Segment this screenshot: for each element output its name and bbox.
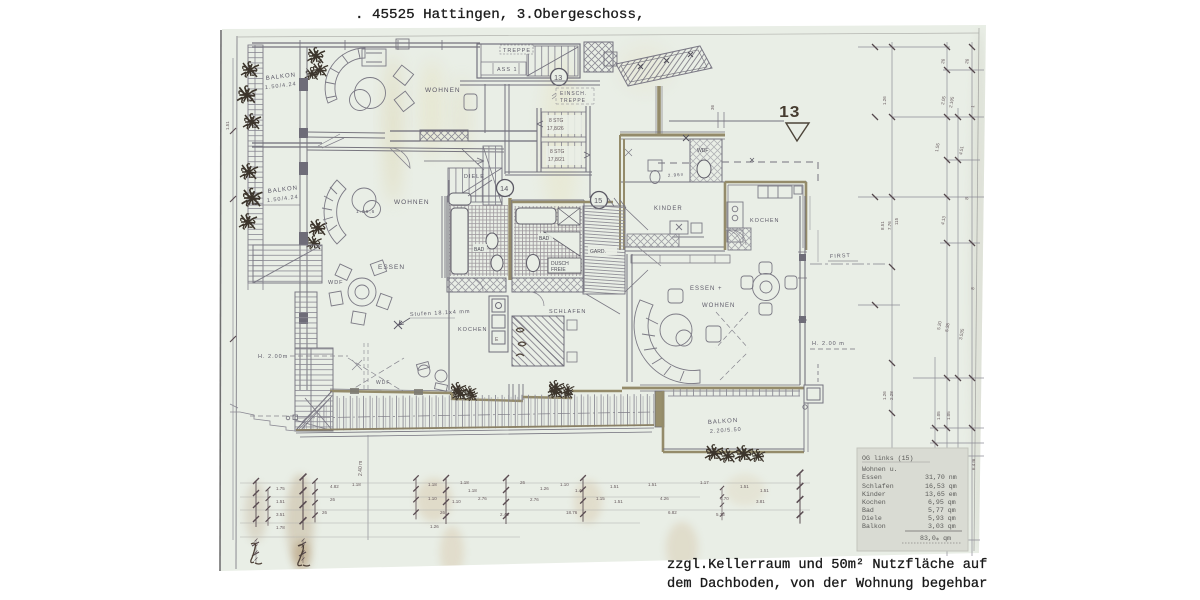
svg-text:26: 26 xyxy=(440,510,446,515)
svg-text:1.51: 1.51 xyxy=(740,484,749,489)
svg-text:5,77 qm: 5,77 qm xyxy=(928,507,956,514)
svg-text:26: 26 xyxy=(520,480,526,485)
svg-text:36: 36 xyxy=(710,104,715,110)
svg-text:TREPPE: TREPPE xyxy=(560,98,586,104)
svg-text:14: 14 xyxy=(500,184,508,193)
svg-text:1.51: 1.51 xyxy=(276,499,285,504)
svg-text:1.26: 1.26 xyxy=(882,96,887,105)
svg-text:H. 2.00m: H. 2.00m xyxy=(258,354,288,360)
svg-text:1.26: 1.26 xyxy=(430,524,439,529)
svg-text:WOHNEN: WOHNEN xyxy=(702,303,735,309)
svg-text:2.28: 2.28 xyxy=(889,391,894,400)
svg-text:1.15: 1.15 xyxy=(596,496,605,501)
svg-text:SCHLAFEN: SCHLAFEN xyxy=(549,309,586,315)
svg-text:1.26: 1.26 xyxy=(540,486,549,491)
svg-text:17,8/26: 17,8/26 xyxy=(547,126,564,132)
svg-text:83,0⁎ qm: 83,0⁎ qm xyxy=(920,535,951,542)
svg-text:6.4 m: 6.4 m xyxy=(971,458,976,470)
svg-text:. 45525 Hattingen, 3.Obergesch: . 45525 Hattingen, 3.Obergeschoss, xyxy=(355,7,644,23)
svg-text:1.51: 1.51 xyxy=(610,484,619,489)
svg-text:7.76: 7.76 xyxy=(887,221,892,230)
svg-text:ASS 1: ASS 1 xyxy=(497,67,518,73)
svg-text:1.18: 1.18 xyxy=(460,480,469,485)
svg-text:Balkon: Balkon xyxy=(862,523,886,530)
svg-text:1.10: 1.10 xyxy=(452,499,461,504)
svg-text:16,53 qm: 16,53 qm xyxy=(925,483,957,490)
svg-text:6,95 qm: 6,95 qm xyxy=(928,499,956,506)
svg-text:17,8/21: 17,8/21 xyxy=(548,157,565,163)
svg-text:1.05: 1.05 xyxy=(946,411,951,420)
svg-text:3.51: 3.51 xyxy=(276,512,285,517)
svg-text:1.51: 1.51 xyxy=(225,121,230,130)
svg-text:WDF: WDF xyxy=(376,380,390,386)
svg-text:KINDER: KINDER xyxy=(654,206,683,212)
svg-text:Kochen: Kochen xyxy=(862,499,886,506)
svg-text:GARD.: GARD. xyxy=(590,249,606,255)
svg-text:2.40 m: 2.40 m xyxy=(358,461,364,476)
svg-text:5,93 qm: 5,93 qm xyxy=(928,515,956,522)
svg-text:1.26: 1.26 xyxy=(882,391,887,400)
svg-text:2.40: 2.40 xyxy=(500,512,509,517)
svg-text:WOHNEN: WOHNEN xyxy=(425,87,461,94)
svg-text:KOCHEN: KOCHEN xyxy=(458,327,488,333)
svg-text:BAD: BAD xyxy=(474,247,485,253)
svg-text:Bad: Bad xyxy=(862,507,874,514)
svg-text:31,70 nm: 31,70 nm xyxy=(925,474,957,481)
svg-text:4.70: 4.70 xyxy=(720,496,729,501)
svg-text:3.81: 3.81 xyxy=(756,499,765,504)
svg-text:WOHNEN: WOHNEN xyxy=(394,199,430,206)
svg-text:KOCHEN: KOCHEN xyxy=(750,218,780,224)
svg-text:H. 2.00 m: H. 2.00 m xyxy=(812,341,845,347)
svg-text:3,03 qm: 3,03 qm xyxy=(928,523,956,530)
svg-text:1.18: 1.18 xyxy=(428,482,437,487)
svg-text:EINSCH.: EINSCH. xyxy=(560,91,587,97)
svg-text:Kinder: Kinder xyxy=(862,491,886,498)
svg-text:1.75: 1.75 xyxy=(276,486,285,491)
svg-text:6.82: 6.82 xyxy=(668,510,677,515)
svg-text:115: 115 xyxy=(894,217,899,225)
svg-text:8 STG: 8 STG xyxy=(550,149,565,155)
svg-text:1.18: 1.18 xyxy=(352,482,361,487)
svg-text:FREIE: FREIE xyxy=(551,267,566,273)
svg-text:1.05: 1.05 xyxy=(936,411,941,420)
svg-text:OG links (15): OG links (15) xyxy=(862,455,913,462)
svg-text:Diele: Diele xyxy=(862,515,882,522)
svg-text:8 STG: 8 STG xyxy=(549,118,564,124)
svg-text:TREPPE: TREPPE xyxy=(503,48,531,54)
svg-text:4.26: 4.26 xyxy=(660,496,669,501)
svg-text:Wohnen u.: Wohnen u. xyxy=(862,466,898,473)
svg-text:WDF: WDF xyxy=(328,280,344,286)
svg-text:WDF: WDF xyxy=(697,148,708,154)
svg-text:8.51: 8.51 xyxy=(880,221,885,230)
svg-text:13,65 em: 13,65 em xyxy=(925,491,957,498)
svg-text:FIRST: FIRST xyxy=(830,253,851,260)
svg-text:26: 26 xyxy=(330,497,336,502)
svg-text:ESSEN: ESSEN xyxy=(378,264,405,271)
svg-text:zzgl.Kellerraum und 50m² Nutzf: zzgl.Kellerraum und 50m² Nutzfläche auf xyxy=(667,558,987,573)
svg-text:5.73: 5.73 xyxy=(716,512,725,517)
svg-text:1.78: 1.78 xyxy=(276,525,285,530)
svg-text:1.17: 1.17 xyxy=(700,480,709,485)
svg-text:26: 26 xyxy=(322,510,328,515)
svg-text:2.76: 2.76 xyxy=(478,496,487,501)
svg-text:1.10: 1.10 xyxy=(560,482,569,487)
svg-text:13: 13 xyxy=(779,103,800,121)
svg-text:1.06,6: 1.06,6 xyxy=(356,209,375,215)
svg-text:1.51: 1.51 xyxy=(614,499,623,504)
svg-text:1.51: 1.51 xyxy=(760,488,769,493)
svg-text:DIELE: DIELE xyxy=(464,174,485,180)
svg-text:2.76: 2.76 xyxy=(530,497,539,502)
svg-text:BAD: BAD xyxy=(539,236,550,242)
svg-text:Essen: Essen xyxy=(862,474,882,481)
svg-text:15: 15 xyxy=(594,196,602,205)
svg-text:1.40: 1.40 xyxy=(575,488,584,493)
svg-text:4.82: 4.82 xyxy=(330,484,339,489)
svg-text:ESSEN +: ESSEN + xyxy=(690,286,723,292)
svg-text:1.18: 1.18 xyxy=(468,488,477,493)
svg-text:1.10: 1.10 xyxy=(428,496,437,501)
svg-text:Schlafen: Schlafen xyxy=(862,483,894,490)
svg-text:1.51: 1.51 xyxy=(648,482,657,487)
svg-text:18.76: 18.76 xyxy=(566,510,578,515)
svg-text:dem Dachboden, von der Wohnung: dem Dachboden, von der Wohnung begehbar xyxy=(667,577,987,592)
